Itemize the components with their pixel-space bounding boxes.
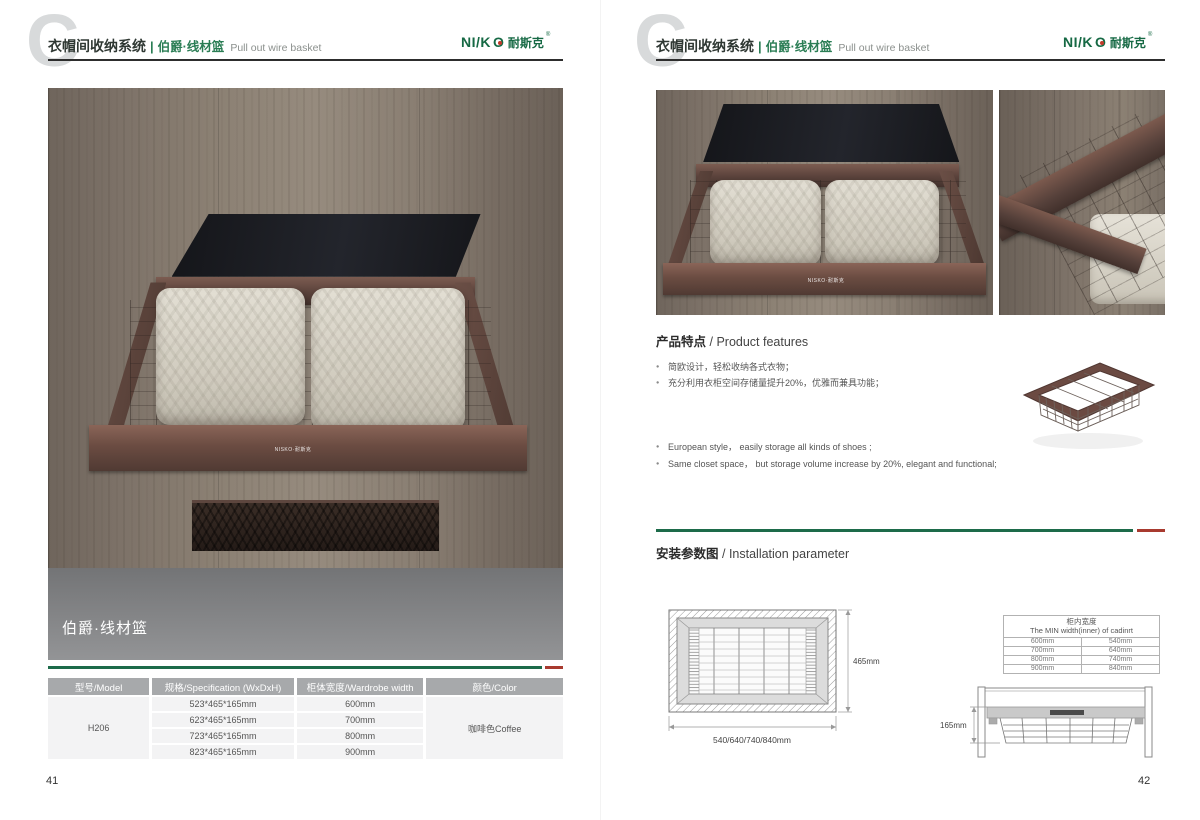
glass-shelf: [703, 104, 959, 163]
header-rule: [656, 59, 1165, 61]
registered-mark: ®: [1148, 32, 1152, 38]
page-number-right: 42: [1138, 775, 1150, 787]
depth-label: 465mm: [853, 657, 880, 666]
col-specification: 规格/Specification (WxDxH): [152, 678, 294, 695]
basket-outline: [1000, 718, 1132, 743]
spec-cell: 523*465*165mm: [152, 697, 294, 711]
divider-red: [545, 666, 563, 669]
feature-item: 充分利用衣柜空间存储量提升20%，优雅而兼具功能；: [656, 375, 1006, 391]
logo-o-icon: O: [493, 34, 504, 50]
inner-width-cell: 840mm: [1081, 664, 1159, 673]
page-title: 衣帽间收纳系统|伯爵·线材篮Pull out wire basket: [656, 36, 929, 56]
feature-item: Same closet space， but storage volume in…: [656, 456, 1006, 472]
product-title-cn: 伯爵·线材篮: [766, 40, 833, 54]
features-title-sep: /: [706, 335, 716, 349]
glass-shelf: [172, 214, 481, 277]
catalog-spread: C 衣帽间收纳系统|伯爵·线材篮Pull out wire basket NI/…: [0, 0, 1200, 820]
render-wires: [1039, 373, 1139, 431]
brand-logo: NI/KO 耐斯克 ®: [461, 34, 550, 51]
page-title: 衣帽间收纳系统|伯爵·线材篮Pull out wire basket: [48, 36, 321, 56]
table-row: 700mm 640mm: [1004, 646, 1160, 655]
top-view-diagram: 465mm 540/640/740/840mm: [656, 597, 888, 759]
page-gutter: [600, 0, 601, 820]
spec-cell: 623*465*165mm: [152, 713, 294, 727]
installation-section-title: 安装参数图 / Installation parameter: [656, 543, 849, 562]
features-title: 产品特点 / Product features: [656, 331, 1006, 350]
logo-text: NI/K: [1063, 34, 1093, 50]
lower-tray: [192, 500, 439, 551]
width-label: 540/640/740/840mm: [713, 735, 791, 745]
spec-table-header-row: 型号/Model 规格/Specification (WxDxH) 柜体宽度/W…: [48, 678, 563, 695]
min-width-header: 柜内宽度 The MIN width(inner) of cadinrt: [1004, 616, 1160, 638]
width-cell: 700mm: [297, 713, 424, 727]
inner-width-cell: 740mm: [1081, 655, 1159, 664]
title-divider: |: [150, 39, 154, 54]
height-label: 165mm: [940, 721, 967, 730]
cabinet-width-cell: 700mm: [1004, 646, 1082, 655]
color-cell: 咖啡色Coffee: [426, 697, 563, 759]
inner-width-cell: 640mm: [1081, 646, 1159, 655]
width-cell: 900mm: [297, 745, 424, 759]
logo-cn: 耐斯克: [1110, 34, 1146, 51]
product-features-section: 产品特点 / Product features 简欧设计，轻松收纳各式衣物； 充…: [656, 331, 1006, 472]
basket-render-image: [1012, 333, 1165, 465]
rail-brand-text: NISKO·耐斯克: [275, 446, 312, 453]
brand-logo: NI/KO 耐斯克 ®: [1063, 34, 1152, 51]
floor: [48, 568, 563, 660]
spec-cell: 823*465*165mm: [152, 745, 294, 759]
product-title-cn: 伯爵·线材篮: [158, 40, 225, 54]
sweater-right: [825, 180, 940, 266]
features-title-en: Product features: [716, 335, 808, 349]
col-color: 颜色/Color: [426, 678, 563, 695]
cabinet-width-cell: 800mm: [1004, 655, 1082, 664]
feature-item: European style， easily storage all kinds…: [656, 439, 1006, 455]
dimension-width: [669, 716, 836, 731]
table-row: H206 523*465*165mm 600mm 咖啡色Coffee: [48, 697, 563, 711]
sweater-left: [156, 288, 305, 425]
page-number-left: 41: [46, 775, 58, 787]
width-cell: 600mm: [297, 697, 424, 711]
width-cell: 800mm: [297, 729, 424, 743]
sweater-left: [710, 180, 821, 266]
min-width-title: 柜内宽度 The MIN width(inner) of cadinrt: [1004, 616, 1160, 638]
cabinet-width-cell: 600mm: [1004, 637, 1082, 646]
min-width-title-cn: 柜内宽度: [1006, 617, 1157, 626]
features-title-cn: 产品特点: [656, 335, 706, 349]
front-view-diagram: 165mm: [930, 677, 1165, 769]
dimension-depth: [838, 610, 852, 712]
inner-width-cell: 540mm: [1081, 637, 1159, 646]
logo-red-dot-icon: [1100, 41, 1104, 45]
product-title-en: Pull out wire basket: [838, 42, 929, 54]
title-divider: |: [758, 39, 762, 54]
min-width-table: 柜内宽度 The MIN width(inner) of cadinrt 600…: [1003, 615, 1160, 674]
divider-green: [48, 666, 542, 669]
header-rule: [48, 59, 563, 61]
col-wardrobe-width: 柜体宽度/Wardrobe width: [297, 678, 424, 695]
detail-photo-basket: NISKO·耐斯克: [656, 90, 993, 315]
table-row: 600mm 540mm: [1004, 637, 1160, 646]
logo-red-dot-icon: [498, 41, 502, 45]
features-list-en: European style， easily storage all kinds…: [656, 439, 1006, 471]
logo-cn: 耐斯克: [508, 34, 544, 51]
registered-mark: ®: [546, 32, 550, 38]
detail-photo-corner: [999, 90, 1165, 315]
rail-brand-text: NISKO·耐斯克: [808, 277, 845, 284]
features-list-cn: 简欧设计，轻松收纳各式衣物； 充分利用衣柜空间存储量提升20%，优雅而兼具功能；: [656, 359, 1006, 391]
model-cell: H206: [48, 697, 149, 759]
logo-o-icon: O: [1095, 34, 1106, 50]
table-row: 800mm 740mm: [1004, 655, 1160, 664]
col-model: 型号/Model: [48, 678, 149, 695]
wardrobe-photo: NISKO·耐斯克 伯爵·线材篮: [48, 88, 563, 660]
spec-cell: 723*465*165mm: [152, 729, 294, 743]
spec-table: 型号/Model 规格/Specification (WxDxH) 柜体宽度/W…: [45, 676, 566, 761]
table-row: 900mm 840mm: [1004, 664, 1160, 673]
logo-text: NI/K: [461, 34, 491, 50]
cabinet-walls: [978, 687, 1152, 757]
divider-red: [1137, 529, 1165, 532]
system-title: 衣帽间收纳系统: [656, 38, 754, 54]
cabinet-width-cell: 900mm: [1004, 664, 1082, 673]
divider-green: [656, 529, 1133, 532]
min-width-title-en: The MIN width(inner) of cadinrt: [1006, 626, 1157, 635]
photo-caption: 伯爵·线材篮: [62, 617, 148, 638]
feature-item: 简欧设计，轻松收纳各式衣物；: [656, 359, 1006, 375]
product-title-en: Pull out wire basket: [230, 42, 321, 54]
sweater-right: [311, 288, 466, 431]
installation-title-en: Installation parameter: [729, 547, 849, 561]
installation-title-sep: /: [719, 547, 729, 561]
installation-title-cn: 安装参数图: [656, 547, 719, 561]
system-title: 衣帽间收纳系统: [48, 38, 146, 54]
